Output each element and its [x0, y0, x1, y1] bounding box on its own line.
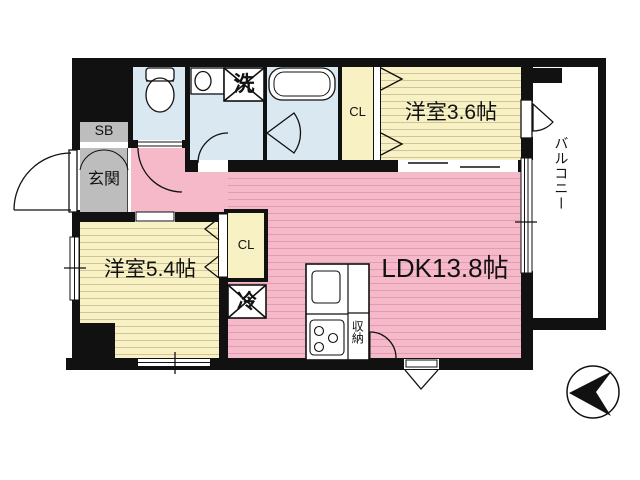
balcony-label: バルコニー — [553, 136, 568, 248]
refrigerator-label: 冷 — [228, 291, 266, 313]
north-compass-icon — [567, 366, 619, 418]
western-room-upper-label: 洋室3.6帖 — [381, 101, 521, 124]
closet-lower-label: CL — [228, 238, 264, 252]
storage-door — [370, 332, 396, 358]
plan-linework — [0, 0, 640, 480]
closet-upper-label: CL — [342, 105, 373, 119]
balcony-door — [521, 100, 553, 138]
shoe-box-label: SB — [80, 123, 128, 138]
sink-icon — [191, 68, 224, 94]
sliding-door-gap — [398, 160, 518, 172]
lower-room-door — [136, 212, 174, 221]
toilet-icon — [146, 68, 174, 112]
toilet-door — [138, 142, 182, 192]
entrance-label: 玄関 — [80, 171, 128, 189]
storage-label: 収納 — [350, 320, 363, 360]
washing-machine-label: 洗 — [224, 73, 264, 96]
bathroom-door — [267, 113, 301, 153]
toilet-door-gap — [138, 140, 182, 148]
western-room-lower-label: 洋室5.4帖 — [80, 258, 220, 281]
floor-plan: LDK13.8帖 洋室3.6帖 洋室5.4帖 玄関 SB CL CL 洗 冷 収… — [0, 0, 640, 480]
bathtub-icon — [269, 68, 335, 100]
entrance-arc — [80, 150, 128, 170]
ldk-label: LDK13.8帖 — [330, 254, 560, 283]
bottom-door — [405, 360, 438, 389]
washroom-door — [198, 133, 228, 163]
bottom-window — [138, 352, 210, 374]
front-door — [14, 150, 77, 212]
